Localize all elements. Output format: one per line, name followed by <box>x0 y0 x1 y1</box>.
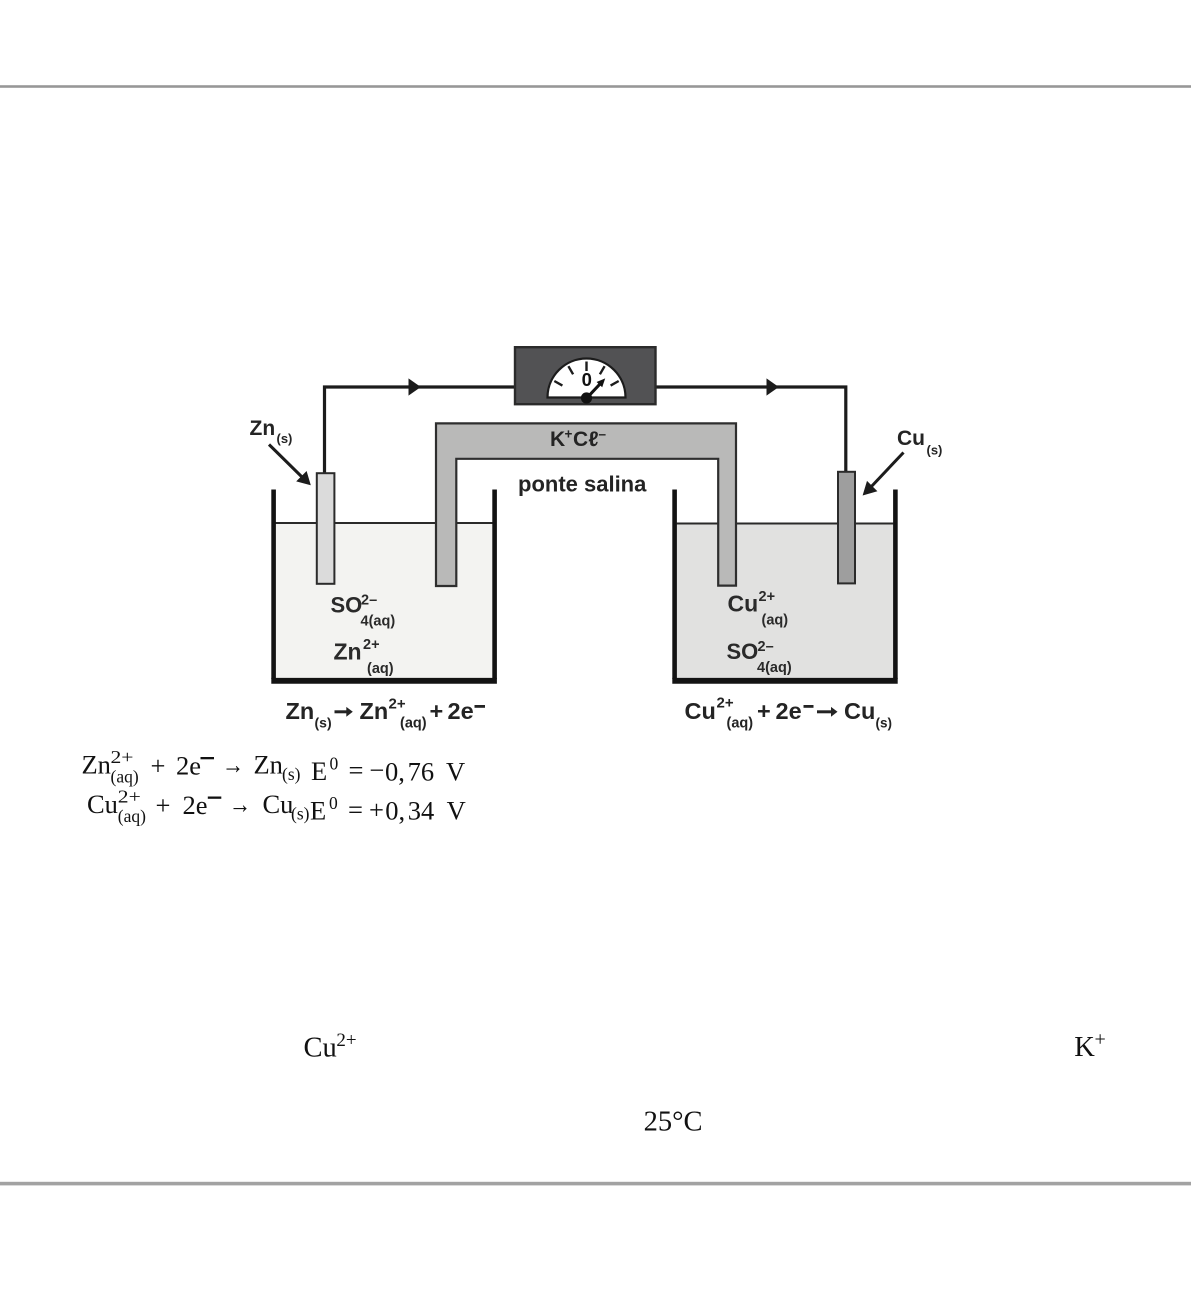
svg-text:E: E <box>310 796 326 826</box>
svg-text:76: 76 <box>408 757 435 787</box>
svg-text:Cu: Cu <box>304 1032 337 1063</box>
svg-text:2+: 2+ <box>118 787 141 807</box>
svg-text:ℓ: ℓ <box>589 428 599 451</box>
svg-text:SO: SO <box>727 639 759 664</box>
svg-text:2+: 2+ <box>363 637 380 653</box>
svg-text:4(aq): 4(aq) <box>361 614 396 630</box>
svg-text:Zn: Zn <box>286 698 315 724</box>
svg-text:V: V <box>447 796 466 826</box>
svg-text:4(aq): 4(aq) <box>757 660 792 676</box>
svg-text:2e: 2e <box>183 790 208 820</box>
svg-text:(aq): (aq) <box>118 806 146 826</box>
svg-text:2+: 2+ <box>717 695 734 712</box>
svg-text:SO: SO <box>331 593 363 618</box>
svg-text:=: = <box>348 795 363 825</box>
svg-text:→: → <box>222 750 244 780</box>
svg-text:2e: 2e <box>448 698 474 724</box>
svg-text:Cu: Cu <box>897 427 925 450</box>
svg-text:(s): (s) <box>876 716 893 731</box>
svg-text:V: V <box>446 757 465 787</box>
svg-text:(aq): (aq) <box>111 767 139 787</box>
svg-text:Cu: Cu <box>263 789 294 819</box>
svg-text:0,: 0, <box>385 757 405 787</box>
svg-text:25°C: 25°C <box>644 1107 703 1138</box>
svg-text:34: 34 <box>408 796 435 826</box>
svg-text:E: E <box>311 756 327 786</box>
svg-text:Zn: Zn <box>254 750 283 780</box>
svg-text:(aq): (aq) <box>762 613 789 629</box>
svg-text:(s): (s) <box>927 443 943 458</box>
svg-text:+: + <box>757 698 771 724</box>
svg-text:+: + <box>369 795 384 825</box>
svg-text:+: + <box>1095 1029 1106 1051</box>
svg-text:(s): (s) <box>282 764 301 784</box>
svg-text:2+: 2+ <box>111 747 134 767</box>
svg-text:2+: 2+ <box>759 589 776 605</box>
svg-text:+: + <box>151 751 166 781</box>
svg-text:0: 0 <box>582 369 592 390</box>
svg-text:K: K <box>550 428 565 451</box>
svg-text:Zn: Zn <box>334 639 362 665</box>
svg-text:2–: 2– <box>361 593 377 609</box>
svg-text:Cu: Cu <box>844 698 875 724</box>
svg-text:Zn: Zn <box>360 698 389 724</box>
svg-text:0: 0 <box>329 793 338 813</box>
svg-text:(aq): (aq) <box>367 661 394 677</box>
svg-text:2+: 2+ <box>336 1030 356 1051</box>
svg-text:C: C <box>573 428 588 451</box>
svg-text:2+: 2+ <box>389 696 406 713</box>
svg-text:2–: 2– <box>758 639 774 655</box>
svg-text:(aq): (aq) <box>727 716 754 732</box>
svg-text:Cu: Cu <box>87 789 118 819</box>
svg-text:Zn: Zn <box>250 417 276 440</box>
svg-text:→: → <box>229 789 251 819</box>
svg-text:+: + <box>156 790 171 820</box>
svg-text:Zn: Zn <box>82 750 111 780</box>
svg-text:0,: 0, <box>385 796 405 826</box>
svg-text:2e: 2e <box>776 698 802 724</box>
svg-text:K: K <box>1074 1032 1095 1063</box>
svg-text:+: + <box>565 427 573 442</box>
svg-text:(aq): (aq) <box>400 716 427 732</box>
svg-text:2e: 2e <box>176 751 201 781</box>
svg-text:ponte salina: ponte salina <box>518 472 647 497</box>
svg-text:=: = <box>349 755 364 785</box>
svg-text:–: – <box>599 427 607 442</box>
svg-text:+: + <box>430 698 444 724</box>
svg-text:Cu: Cu <box>728 591 759 617</box>
svg-text:0: 0 <box>330 754 339 774</box>
svg-text:Cu: Cu <box>685 698 716 724</box>
svg-text:(s): (s) <box>277 431 293 446</box>
svg-text:(s): (s) <box>315 715 332 731</box>
svg-text:−: − <box>370 755 385 785</box>
svg-text:(s): (s) <box>291 804 310 824</box>
